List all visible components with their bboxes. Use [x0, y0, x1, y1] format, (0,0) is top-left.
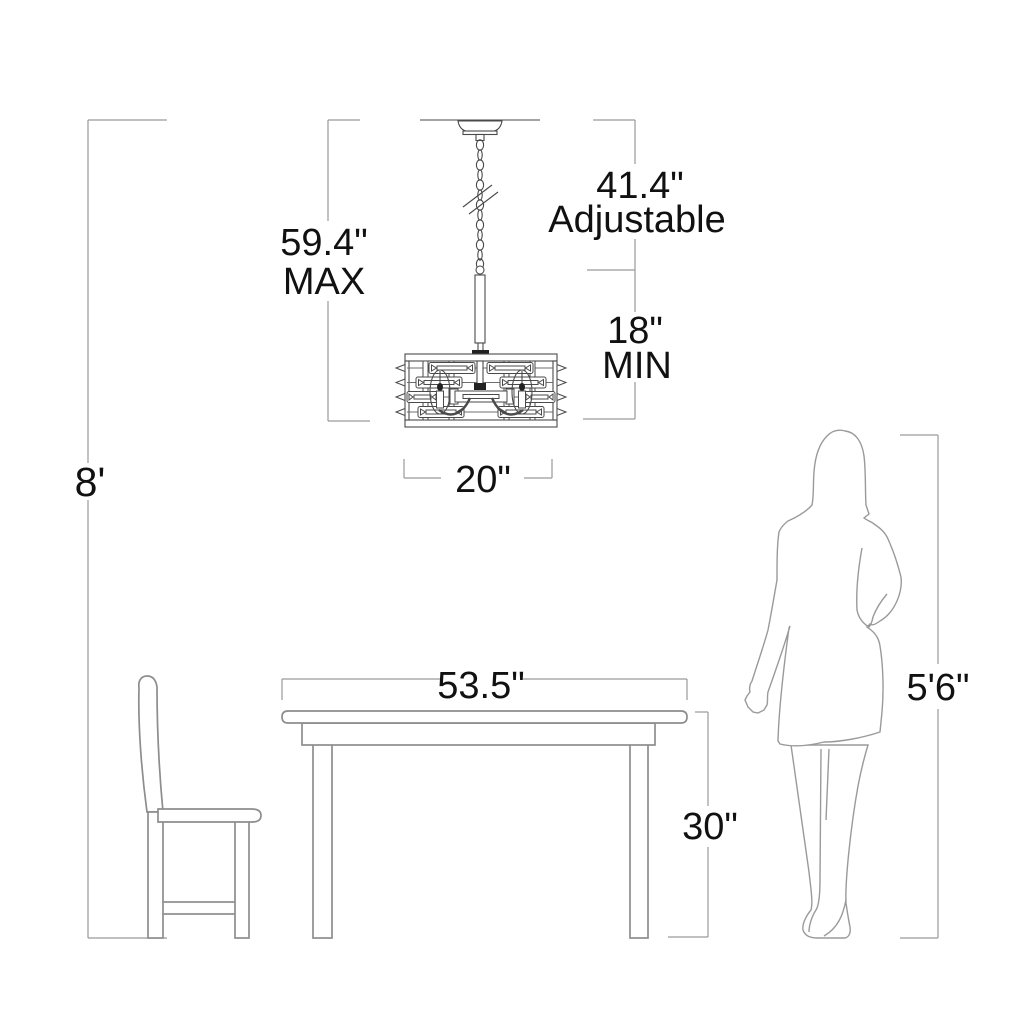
dimension-person-height: 5'6" [900, 435, 970, 938]
max-qualifier-label: MAX [283, 261, 365, 303]
ceiling-height-label: 8' [75, 459, 106, 505]
max-height-label: 59.4" [280, 222, 367, 264]
fixture-body [396, 354, 566, 427]
center-hub [474, 383, 486, 390]
fixture-top-rail [405, 354, 557, 361]
fixture-width-label: 20" [455, 459, 511, 501]
chair [139, 676, 261, 938]
dimension-hanging-length: 41.4" Adjustable 18" MIN [548, 120, 725, 419]
diagram-page: 8' 59.4" MAX 41.4" Adjustable 18" MIN [0, 0, 1024, 1024]
table [282, 711, 687, 938]
chair-back [139, 676, 163, 812]
woman-body [745, 430, 901, 746]
fixture-bottom-rail [405, 420, 557, 427]
adjustable-qualifier-label: Adjustable [548, 199, 725, 241]
chandelier: 20" [396, 120, 566, 501]
dimension-table-width: 53.5" [282, 665, 687, 707]
table-right-leg [630, 735, 648, 938]
woman-silhouette [745, 430, 901, 938]
chain-ball [476, 266, 484, 274]
chair-front-leg [235, 812, 249, 938]
hang-rod [475, 275, 485, 343]
chain [476, 140, 483, 269]
chair-back-leg [148, 812, 163, 938]
person-height-label: 5'6" [906, 667, 969, 709]
rod-stem [478, 343, 483, 351]
table-width-label: 53.5" [437, 665, 524, 707]
diagram-canvas: 8' 59.4" MAX 41.4" Adjustable 18" MIN [0, 0, 1024, 1024]
table-height-label: 30" [682, 806, 738, 848]
table-apron [302, 723, 655, 745]
min-qualifier-label: MIN [602, 345, 672, 387]
table-left-leg [313, 735, 332, 938]
dimension-table-height: 30" [668, 712, 738, 937]
table-top [282, 711, 687, 723]
dimension-max-height: 59.4" MAX [280, 120, 370, 421]
chair-stretcher [160, 902, 237, 914]
side-tip-icon [396, 365, 405, 372]
dimension-fixture-width: 20" [404, 459, 552, 501]
canopy [458, 121, 502, 141]
chair-seat [158, 809, 261, 822]
woman-legs [791, 745, 868, 938]
